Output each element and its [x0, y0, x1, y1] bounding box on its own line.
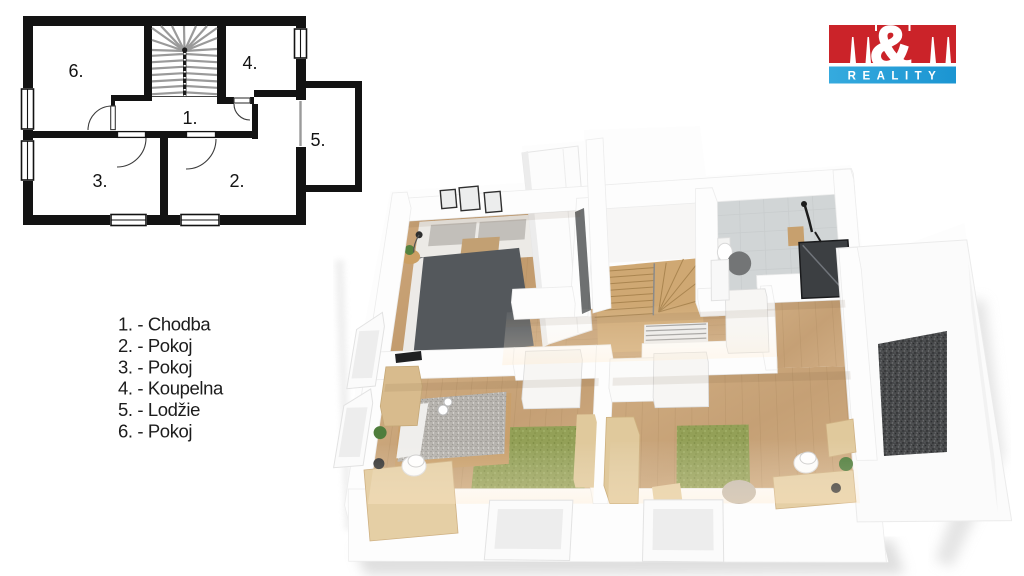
svg-text:5.: 5.	[310, 130, 325, 150]
svg-text:6.: 6.	[68, 61, 83, 81]
svg-text:1.: 1.	[182, 108, 197, 128]
svg-text:REALITY: REALITY	[848, 71, 943, 83]
svg-text:1. - Chodba: 1. - Chodba	[118, 314, 211, 335]
svg-text:5. - Lodžie: 5. - Lodžie	[118, 399, 200, 420]
svg-text:3.: 3.	[92, 171, 107, 191]
svg-text:6. - Pokoj: 6. - Pokoj	[118, 421, 192, 442]
svg-text:2.: 2.	[229, 171, 244, 191]
svg-text:4. - Koupelna: 4. - Koupelna	[118, 378, 224, 399]
svg-text:3. - Pokoj: 3. - Pokoj	[118, 356, 192, 377]
svg-text:4.: 4.	[242, 53, 257, 73]
svg-text:2. - Pokoj: 2. - Pokoj	[118, 335, 192, 356]
